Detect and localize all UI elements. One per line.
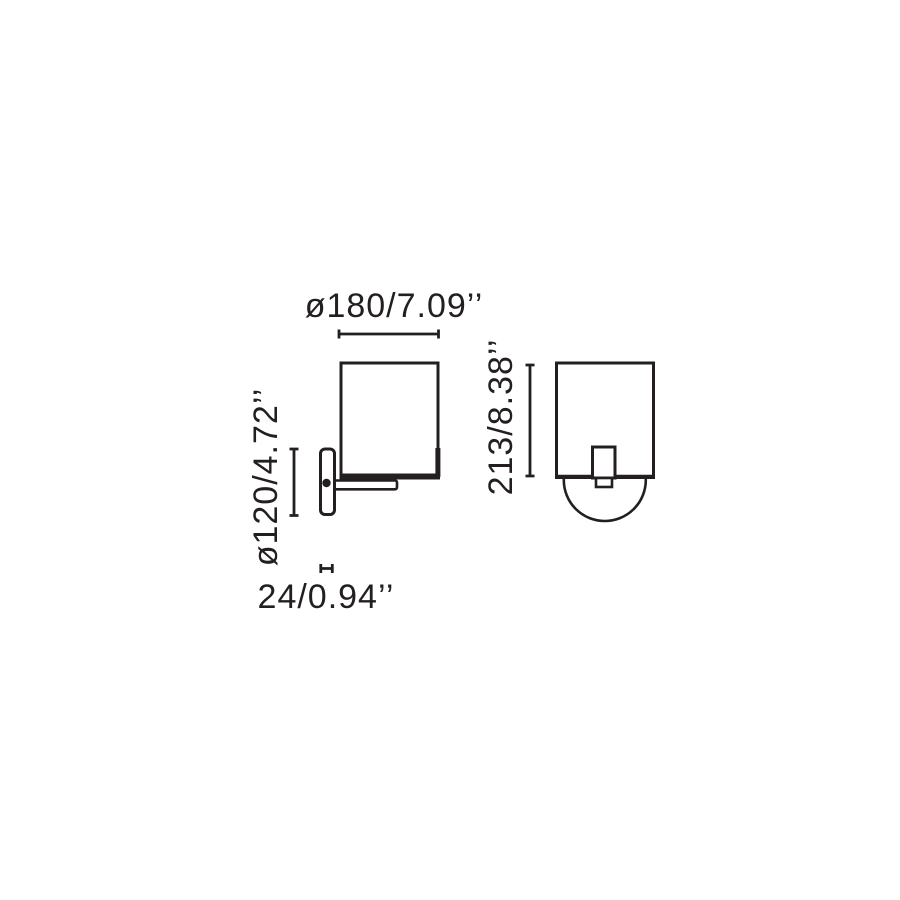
side-view: ø180/7.09’’ ø120/4.72’’ 24/0.94’’	[247, 287, 483, 616]
side-shade-outline	[341, 363, 438, 477]
plate-diameter-dimension-line	[290, 449, 299, 516]
side-mounting-arm	[330, 481, 397, 490]
dimension-drawing: ø180/7.09’’ ø120/4.72’’ 24/0.94’’	[0, 0, 900, 900]
plate-diameter-label: ø120/4.72’’	[247, 388, 285, 567]
plate-depth-label: 24/0.94’’	[258, 578, 395, 616]
front-stem-upper	[593, 447, 616, 478]
shade-diameter-label: ø180/7.09’’	[305, 287, 484, 325]
lamp-technical-drawing: ø180/7.09’’ ø120/4.72’’ 24/0.94’’	[0, 0, 900, 900]
front-stem-lower	[596, 478, 612, 487]
height-dimension-line	[526, 365, 535, 476]
height-label: 213/8.38’’	[482, 339, 520, 496]
plate-depth-dimension-line	[321, 564, 333, 573]
front-view: 213/8.38’’	[482, 339, 654, 521]
shade-diameter-dimension-line	[339, 330, 439, 339]
side-screw-dot	[322, 479, 330, 487]
